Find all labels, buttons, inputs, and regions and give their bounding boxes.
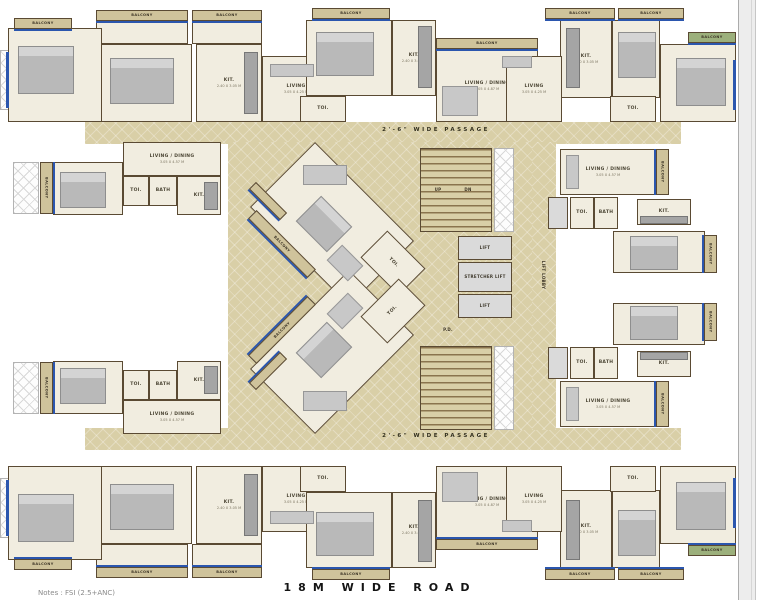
- bath-label: BATH: [156, 188, 171, 193]
- toilet-label: TOI.: [317, 476, 328, 481]
- balcony-bar-label: BALCONY: [340, 572, 361, 576]
- living-dining-dim: 3.05 X 4.57 M: [596, 405, 620, 409]
- toilet-label: TOI.: [627, 476, 638, 481]
- balcony-bar: BALCONY: [14, 18, 72, 29]
- balcony-bar-label: BALCONY: [569, 572, 590, 576]
- stretcher-lift: STRETCHER LIFT: [458, 262, 512, 292]
- balcony-bar-label: BALCONY: [640, 572, 661, 576]
- balcony-bar: BALCONY: [192, 10, 262, 21]
- balcony-bar: BALCONY: [688, 545, 736, 556]
- lift-1-label: LIFT: [480, 246, 491, 251]
- kitchen-counter: [640, 352, 688, 360]
- diag-toilet-lower-label: TOI.: [387, 305, 399, 317]
- balcony-bar-label: BALCONY: [44, 377, 48, 398]
- kitchen-label: KIT.: [194, 378, 204, 383]
- toilet-label: TOI.: [576, 210, 587, 215]
- dining-table: [442, 86, 478, 116]
- lift-lobby-label-label: LIFT LOBBY: [541, 261, 546, 289]
- balcony-bar: BALCONY: [40, 162, 53, 214]
- pd-label-label: P.D.: [443, 328, 453, 333]
- living-dining: LIVING / DINING3.05 X 4.57 M: [123, 400, 221, 434]
- bath-label: BATH: [156, 382, 171, 387]
- balcony-bar-label: BALCONY: [32, 562, 53, 566]
- balcony-bar-label: BALCONY: [216, 570, 237, 574]
- bath: BATH: [149, 370, 177, 400]
- notes-label: Notes : FSI (2.5+ANC): [38, 589, 115, 597]
- balcony-bar: BALCONY: [40, 362, 53, 414]
- lift-2: LIFT: [458, 294, 512, 318]
- balcony-bar-label: BALCONY: [569, 11, 590, 15]
- bed: [630, 306, 678, 340]
- balcony-bar: BALCONY: [656, 149, 669, 195]
- balcony-bar: BALCONY: [436, 539, 538, 550]
- living-dining-dim: 3.05 X 4.57 M: [596, 173, 620, 177]
- dining-table: [442, 472, 478, 502]
- sofa: [566, 387, 579, 421]
- balcony-bar: BALCONY: [96, 10, 188, 21]
- balcony-bar: BALCONY: [704, 235, 717, 273]
- scrollbar-track-line: [751, 0, 752, 600]
- toilet-label: TOI.: [317, 106, 328, 111]
- toilet: TOI.: [300, 466, 346, 492]
- balcony-bar: BALCONY: [436, 38, 538, 49]
- living-dining-dim: 3.05 X 4.57 M: [160, 160, 184, 164]
- toilet-label: TOI.: [130, 188, 141, 193]
- stair-up-label: UP: [428, 186, 448, 194]
- sofa: [502, 56, 532, 68]
- kitchen-label: KIT.: [659, 361, 669, 366]
- stretcher-lift-label: STRETCHER LIFT: [464, 275, 505, 280]
- stair-up-label-label: UP: [435, 188, 442, 193]
- lift-lobby-label: LIFT LOBBY: [538, 250, 548, 300]
- bed: [676, 482, 726, 530]
- pd-label: P.D.: [430, 326, 466, 334]
- balcony-bar: BALCONY: [312, 569, 390, 580]
- balcony-bar: BALCONY: [14, 559, 72, 570]
- balcony-bar-label: BALCONY: [476, 542, 497, 546]
- kitchen-dim: 2.40 X 3.05 M: [217, 84, 241, 88]
- open-balcony: [13, 362, 39, 414]
- toilet: TOI.: [570, 197, 594, 229]
- bed: [316, 32, 374, 76]
- passage-label-bottom: 2'-6" WIDE PASSAGE: [382, 433, 490, 439]
- toilet: TOI.: [610, 466, 656, 492]
- bed: [18, 46, 74, 94]
- duct: [548, 197, 568, 229]
- balcony-bar-label: BALCONY: [708, 243, 712, 264]
- kitchen-label: KIT.: [194, 193, 204, 198]
- balcony-bar: BALCONY: [618, 8, 684, 19]
- balcony-bar: BALCONY: [704, 303, 717, 341]
- window-line: [733, 478, 736, 528]
- bath: BATH: [149, 176, 177, 206]
- bed: [60, 368, 106, 404]
- toilet: TOI.: [123, 176, 149, 206]
- sofa: [270, 64, 314, 77]
- living-dim: 3.05 X 4.25 M: [522, 90, 546, 94]
- bed: [18, 494, 74, 542]
- bath: BATH: [594, 197, 618, 229]
- stair-dn-label-label: DN: [464, 188, 471, 193]
- living-dim: 3.05 X 4.25 M: [284, 90, 308, 94]
- balcony-bar-label: BALCONY: [640, 11, 661, 15]
- stair-dn-label: DN: [458, 186, 478, 194]
- balcony-bar-label: BALCONY: [476, 41, 497, 45]
- open-balcony: [13, 162, 39, 214]
- balcony-bar: BALCONY: [688, 32, 736, 43]
- road-label: 18M WIDE ROAD: [284, 581, 477, 594]
- kitchen-counter: [204, 366, 218, 394]
- kitchen-counter: [566, 28, 580, 88]
- window-line: [733, 60, 736, 110]
- toilet: TOI.: [610, 96, 656, 122]
- sofa: [270, 511, 314, 524]
- balcony-bar-label: BALCONY: [660, 161, 664, 182]
- toilet: TOI.: [570, 347, 594, 379]
- window-line: [6, 480, 9, 536]
- balcony-bar-label: BALCONY: [708, 311, 712, 332]
- balcony-bar-label: BALCONY: [32, 21, 53, 25]
- bath: BATH: [594, 347, 618, 379]
- duct-bottom: [494, 346, 514, 430]
- balcony-bar: BALCONY: [545, 569, 615, 580]
- balcony-bar: BALCONY: [96, 567, 188, 578]
- toilet: TOI.: [123, 370, 149, 400]
- balcony-bar-label: BALCONY: [660, 393, 664, 414]
- deck-slab: [303, 165, 347, 185]
- living-dining: LIVING / DINING3.05 X 4.57 M: [123, 142, 221, 176]
- kitchen-label: KIT.: [659, 209, 669, 214]
- kitchen-counter: [566, 500, 580, 560]
- living-dining-dim: 3.05 X 4.57 M: [160, 418, 184, 422]
- balcony-bar-label: BALCONY: [131, 570, 152, 574]
- balcony-bar-label: BALCONY: [131, 13, 152, 17]
- kitchen-counter: [244, 52, 258, 114]
- balcony-bar: BALCONY: [656, 381, 669, 427]
- kitchen-counter: [640, 216, 688, 224]
- balcony-bar: BALCONY: [545, 8, 615, 19]
- bed: [110, 58, 174, 104]
- duct-top: [494, 148, 514, 232]
- bath-label: BATH: [599, 360, 614, 365]
- bed: [630, 236, 678, 270]
- living-dining-dim: 3.05 X 4.87 M: [475, 503, 499, 507]
- kitchen-counter: [204, 182, 218, 210]
- bed: [110, 484, 174, 530]
- kitchen-counter: [418, 500, 432, 562]
- deck-slab: [303, 391, 347, 411]
- bed: [618, 510, 656, 556]
- balcony-bar-label: BALCONY: [340, 11, 361, 15]
- balcony-bar: BALCONY: [192, 567, 262, 578]
- duct: [548, 347, 568, 379]
- floor-plan-page: LIFTSTRETCHER LIFTLIFTUPDNP.D.LIFT LOBBY…: [0, 0, 759, 600]
- diag-toilet-upper-label: TOI.: [387, 257, 399, 269]
- passage-label-top: 2'-6" WIDE PASSAGE: [382, 127, 490, 133]
- kitchen-counter: [418, 26, 432, 88]
- balcony-bar-label: BALCONY: [216, 13, 237, 17]
- bed: [676, 58, 726, 106]
- sofa: [566, 155, 579, 189]
- living-dim: 3.05 X 4.25 M: [284, 500, 308, 504]
- toilet-label: TOI.: [576, 360, 587, 365]
- kitchen-counter: [244, 474, 258, 536]
- floor-plan: LIFTSTRETCHER LIFTLIFTUPDNP.D.LIFT LOBBY…: [0, 0, 759, 600]
- bed: [618, 32, 656, 78]
- balcony-bar: BALCONY: [618, 569, 684, 580]
- staircase-bottom: [420, 346, 492, 430]
- balcony-bar-label: BALCONY: [701, 35, 722, 39]
- bath-label: BATH: [599, 210, 614, 215]
- toilet-label: TOI.: [627, 106, 638, 111]
- toilet: TOI.: [300, 96, 346, 122]
- lift-1: LIFT: [458, 236, 512, 260]
- bed: [316, 512, 374, 556]
- window-line: [6, 52, 9, 108]
- passage-band-top: [85, 122, 681, 144]
- balcony-bar-label: BALCONY: [44, 177, 48, 198]
- balcony-bar: BALCONY: [312, 8, 390, 19]
- lift-2-label: LIFT: [480, 304, 491, 309]
- balcony-bar-label: BALCONY: [701, 548, 722, 552]
- sofa: [502, 520, 532, 532]
- kitchen-dim: 2.40 X 3.05 M: [217, 506, 241, 510]
- bed: [60, 172, 106, 208]
- toilet-label: TOI.: [130, 382, 141, 387]
- living-dim: 3.05 X 4.25 M: [522, 500, 546, 504]
- living-dining-dim: 3.05 X 4.87 M: [475, 87, 499, 91]
- scrollbar[interactable]: [738, 0, 756, 600]
